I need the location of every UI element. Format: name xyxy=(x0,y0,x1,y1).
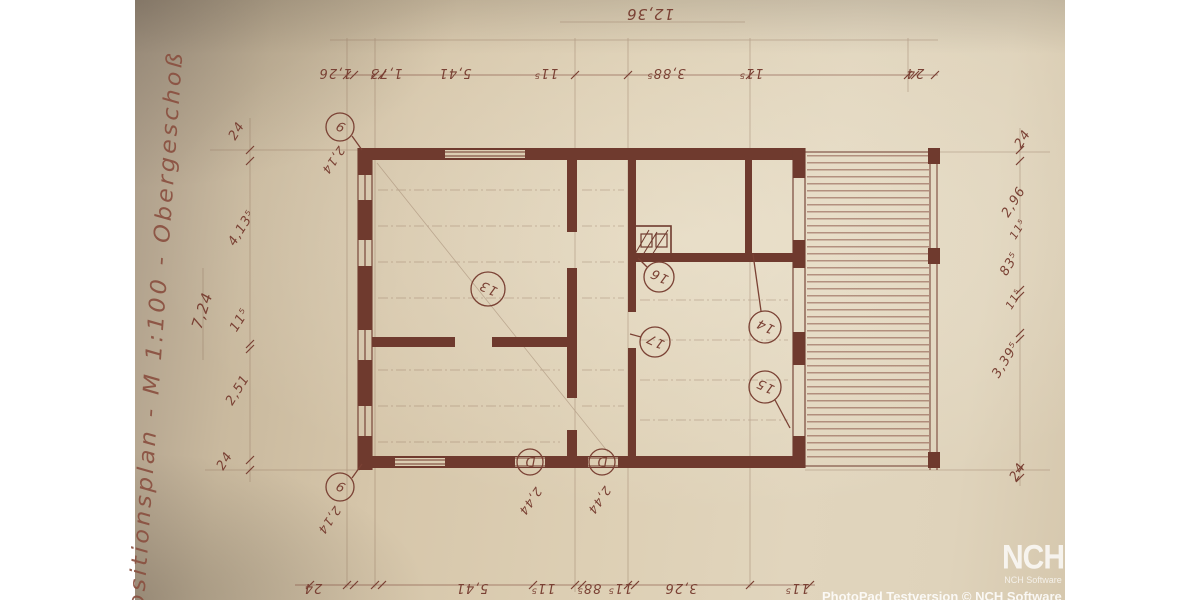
photo-of-floor-plan: 9 9 13 16 17 14 15 D D 12,36 1,26 1,73 5… xyxy=(0,0,1200,600)
marker-label: 14 xyxy=(754,315,777,336)
annotation-label: 2,44 xyxy=(516,485,545,518)
annotation-label: 2,44 xyxy=(585,484,614,517)
nch-logo-subtext: NCH Software xyxy=(1001,576,1065,585)
dimension-label: 3,39⁵ xyxy=(989,340,1022,381)
construction-lines xyxy=(203,22,1050,592)
marker-label: 9 xyxy=(333,117,348,135)
dimension-label: 11⁵ xyxy=(1007,217,1029,242)
marker-label: 13 xyxy=(477,277,500,298)
dimension-label: 5,41 xyxy=(439,65,472,80)
photopad-trial-banner: PhotoPad Testversion © NCH Software xyxy=(822,590,1062,600)
dimension-label: 24 xyxy=(906,65,925,80)
walls xyxy=(358,148,940,470)
dimension-total-top: 12,36 xyxy=(626,5,674,23)
dimension-label: 24 xyxy=(1007,460,1030,484)
position-markers xyxy=(326,113,790,501)
dimension-label: 11⁵ xyxy=(739,65,764,80)
marker-label: 17 xyxy=(644,330,667,351)
floor-plan-drawing: 9 9 13 16 17 14 15 D D 12,36 1,26 1,73 5… xyxy=(0,0,1200,600)
dimension-label: 11⁵ xyxy=(608,580,633,595)
dimension-label: 24 xyxy=(214,449,237,473)
dimension-label: 3,88⁵ xyxy=(646,65,685,80)
left-dimension-chain: 24 4,13⁵ 11⁵ 2,51 24 7,24 xyxy=(188,119,259,473)
dimension-total-left: 7,24 xyxy=(188,290,217,331)
dimension-label: 2,51 xyxy=(223,372,253,408)
annotation-label: 2,14 xyxy=(315,504,344,537)
dimension-label: 2,96 xyxy=(999,184,1029,220)
marker-label: 15 xyxy=(754,375,777,396)
nch-logo: NCH xyxy=(1001,541,1065,576)
dimension-label: 88⁵ xyxy=(577,580,602,595)
dimension-label: 11⁵ xyxy=(531,580,556,595)
dimension-label: 1,73 xyxy=(370,65,403,80)
plan-title-vertical: ositionsplan - M 1:100 - Obergeschoß xyxy=(125,49,189,600)
marker-label: 16 xyxy=(648,265,671,286)
dimension-label: 3,26 xyxy=(665,580,698,595)
dimension-label: 24 xyxy=(1012,127,1035,151)
annotation-label: 2,14 xyxy=(319,144,348,177)
dimension-label: 24 xyxy=(304,580,323,595)
dimension-label: 11⁵ xyxy=(1003,287,1025,312)
dimension-label: 5,41 xyxy=(456,580,489,595)
door-marker-label: D xyxy=(596,453,607,468)
dimension-label: 4,13⁵ xyxy=(225,208,258,249)
right-dimension-chain: 24 2,96 11⁵ 83⁵ 11⁵ 3,39⁵ 24 xyxy=(989,127,1034,484)
dimension-label: 83⁵ xyxy=(997,250,1023,279)
dimension-label: 24 xyxy=(226,119,249,143)
nch-watermark: NCH NCH Software xyxy=(1001,543,1065,585)
position-marker-labels: 9 9 13 16 17 14 15 D D xyxy=(333,117,777,495)
dimension-label: 11⁵ xyxy=(227,306,253,335)
dimension-label: 1,26 xyxy=(319,65,352,80)
marker-label: 9 xyxy=(333,477,348,495)
dimension-label: 11⁵ xyxy=(534,65,559,80)
dimension-label: 11⁵ xyxy=(785,580,810,595)
door-marker-label: D xyxy=(524,453,535,468)
top-dimension-chain: 12,36 1,26 1,73 5,41 11⁵ 3,88⁵ 11⁵ 24 xyxy=(319,5,925,80)
